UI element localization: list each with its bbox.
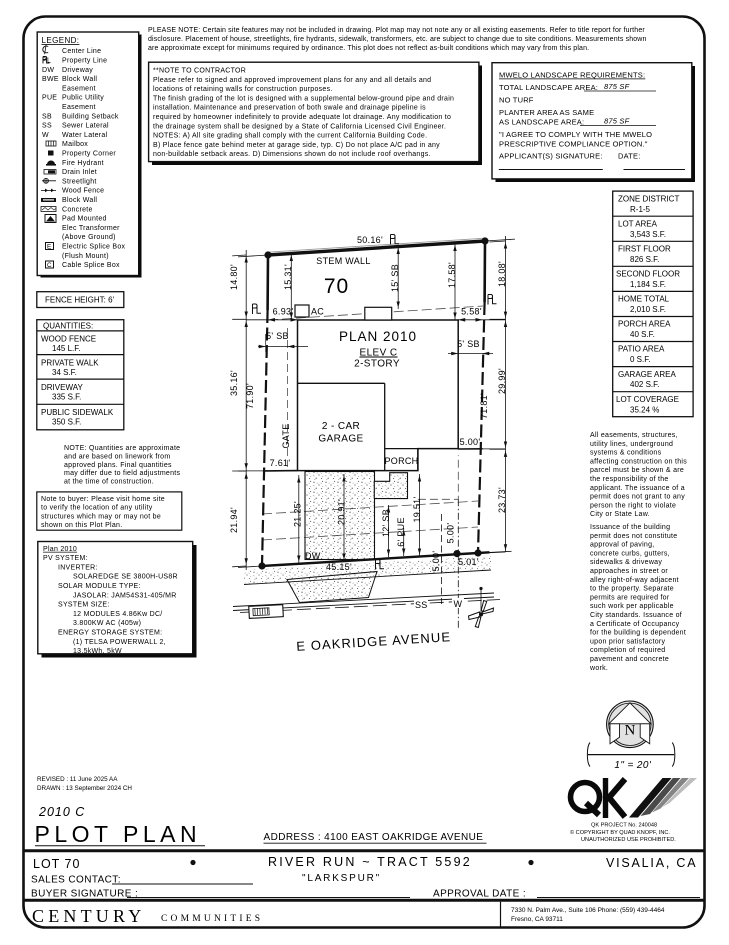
- svg-text:INVERTER:: INVERTER:: [58, 564, 98, 571]
- svg-text:PRESCRIPTIVE COMPLIANCE OPTION: PRESCRIPTIVE COMPLIANCE OPTION.": [499, 140, 648, 149]
- svg-text:CENTURY: CENTURY: [32, 906, 145, 926]
- svg-text:SOLAREDGE SE 3800H-US8R: SOLAREDGE SE 3800H-US8R: [73, 574, 178, 581]
- svg-text:installation. Maintenance and: installation. Maintenance and preservati…: [153, 105, 426, 112]
- svg-text:45.15': 45.15': [326, 562, 352, 572]
- svg-text:N: N: [624, 723, 635, 739]
- svg-text:NO TURF: NO TURF: [499, 96, 534, 105]
- svg-text:17.58': 17.58': [447, 262, 457, 288]
- svg-text:utility lines, underground: utility lines, underground: [590, 441, 673, 448]
- svg-text:C: C: [47, 262, 52, 269]
- svg-text:Streetlight: Streetlight: [62, 178, 97, 185]
- svg-text:at the time of construction.: at the time of construction.: [64, 479, 154, 486]
- svg-text:Fresno, CA 93711: Fresno, CA 93711: [511, 916, 563, 923]
- svg-text:71.81': 71.81': [479, 393, 489, 419]
- svg-text:PRIVATE WALK: PRIVATE WALK: [41, 359, 99, 368]
- svg-text:JASOLAR: JAM54S31-405/MR: JASOLAR: JAM54S31-405/MR: [73, 592, 177, 599]
- svg-text:the drainage system shall be d: the drainage system shall be designed by…: [153, 123, 446, 130]
- svg-text:Drain Inlet: Drain Inlet: [62, 169, 97, 176]
- svg-text:Note to buyer: Please visit ho: Note to buyer: Please visit home site: [41, 496, 165, 503]
- svg-text:© COPYRIGHT BY QUAD KNOPF, I: © COPYRIGHT BY QUAD KNOPF, INC.: [570, 829, 670, 836]
- svg-text:work.: work.: [589, 665, 608, 672]
- svg-text:"I AGREE TO COMPLY WITH THE MW: "I AGREE TO COMPLY WITH THE MWELO: [499, 130, 652, 139]
- svg-text:and are based on linework from: and are based on linework from: [64, 453, 170, 460]
- svg-text:Cable Splice Box: Cable Splice Box: [62, 262, 120, 269]
- svg-text:Concrete: Concrete: [62, 206, 93, 213]
- svg-text:R-1-5: R-1-5: [630, 205, 651, 214]
- svg-text:Issuance of the building: Issuance of the building: [590, 524, 670, 531]
- svg-text:2,010 S.F.: 2,010 S.F.: [630, 305, 666, 314]
- svg-text:shown on this Plot Plan.: shown on this Plot Plan.: [41, 522, 122, 529]
- svg-text:WOOD FENCE: WOOD FENCE: [41, 335, 96, 344]
- svg-text:21.25': 21.25': [293, 501, 303, 527]
- svg-text:LOT COVERAGE: LOT COVERAGE: [616, 395, 679, 404]
- svg-text:Elec Transformer: Elec Transformer: [62, 225, 120, 232]
- svg-text:person the right to violate: person the right to violate: [590, 502, 676, 509]
- svg-text:NOTES: A) All site grading sh: NOTES: A) All site grading shall comply …: [153, 133, 427, 140]
- svg-text:may differ due to field adjust: may differ due to field adjustments: [64, 470, 181, 477]
- svg-text:pavement and concrete: pavement and concrete: [590, 656, 669, 663]
- svg-text:1" = 20': 1" = 20': [614, 760, 651, 771]
- svg-text:Sewer Lateral: Sewer Lateral: [62, 123, 109, 130]
- svg-text:Mailbox: Mailbox: [62, 141, 88, 148]
- svg-text:E: E: [47, 244, 51, 251]
- svg-text:PLEASE NOTE: Certain site fea: PLEASE NOTE: Certain site features may n…: [148, 27, 645, 34]
- svg-text:0 S.F.: 0 S.F.: [630, 355, 650, 364]
- svg-text:12 MODULES 4.86Kw DC/: 12 MODULES 4.86Kw DC/: [73, 611, 163, 618]
- svg-text:LOT 70: LOT 70: [33, 857, 80, 871]
- svg-text:PV SYSTEM:: PV SYSTEM:: [43, 555, 88, 562]
- svg-text:5.58': 5.58': [461, 307, 482, 317]
- svg-text:7.61': 7.61': [270, 458, 291, 468]
- svg-text:Water Lateral: Water Lateral: [62, 132, 108, 139]
- svg-text:B) Place fence gate behind met: B) Place fence gate behind meter at gara…: [153, 142, 440, 149]
- svg-text:PLAN 2010: PLAN 2010: [339, 329, 417, 344]
- svg-text:STEM WALL: STEM WALL: [316, 256, 370, 266]
- svg-text:Easement: Easement: [62, 85, 96, 92]
- svg-text:350 S.F.: 350 S.F.: [52, 418, 81, 427]
- svg-text:structures which may or may no: structures which may or may not be: [41, 513, 161, 520]
- svg-text:required by homeowner indefini: required by homeowner indefinitely to pr…: [153, 114, 451, 121]
- svg-text:Public Utility: Public Utility: [62, 95, 104, 102]
- svg-text:Center Line: Center Line: [62, 48, 101, 55]
- svg-text:PLANTER AREA AS SAME: PLANTER AREA AS SAME: [499, 108, 594, 117]
- svg-text:145 L.F.: 145 L.F.: [52, 344, 80, 353]
- svg-text:ZONE DISTRICT: ZONE DISTRICT: [618, 195, 679, 204]
- svg-text:W: W: [42, 132, 49, 139]
- svg-text:PLOT PLAN: PLOT PLAN: [35, 821, 202, 847]
- svg-text:locations of retaining walls f: locations of retaining walls for constru…: [153, 86, 333, 93]
- svg-text:50.16': 50.16': [357, 235, 383, 245]
- svg-text:HOME TOTAL: HOME TOTAL: [618, 295, 670, 304]
- svg-text:Pad Mounted: Pad Mounted: [62, 216, 107, 223]
- svg-text:5' SB: 5' SB: [266, 331, 289, 341]
- svg-text:(Flush Mount): (Flush Mount): [62, 253, 109, 260]
- svg-text:concrete curbs, gutters,: concrete curbs, gutters,: [590, 550, 670, 557]
- svg-text:6.93': 6.93': [273, 307, 294, 317]
- svg-text:PORCH AREA: PORCH AREA: [618, 320, 671, 329]
- svg-text:DRIVEWAY: DRIVEWAY: [41, 383, 83, 392]
- svg-text:NOTE: Quantities are approxim: NOTE: Quantities are approximate: [64, 445, 180, 452]
- svg-text:alley right-of-way adjacent: alley right-of-way adjacent: [590, 577, 679, 584]
- svg-text:are approximate except for min: are approximate except for minimums requ…: [148, 45, 589, 52]
- svg-text:5.00': 5.00': [431, 551, 441, 572]
- svg-text:SALES CONTACT:: SALES CONTACT:: [31, 875, 121, 886]
- svg-text:DATE:: DATE:: [618, 152, 641, 161]
- svg-text:29.99': 29.99': [497, 368, 507, 394]
- svg-text:Building Setback: Building Setback: [62, 113, 119, 120]
- svg-text:MWELO LANDSCAPE REQUIREMENTS:: MWELO LANDSCAPE REQUIREMENTS:: [499, 71, 645, 80]
- svg-text:GARAGE: GARAGE: [318, 434, 363, 445]
- svg-text:20.91': 20.91': [337, 499, 347, 525]
- svg-text:SYSTEM SIZE:: SYSTEM SIZE:: [58, 602, 110, 609]
- svg-text:Easement: Easement: [62, 104, 96, 111]
- svg-text:Please refer to signed and app: Please refer to signed and approved impr…: [153, 77, 431, 84]
- svg-text:disclosure. Placement of hous: disclosure. Placement of house, streetli…: [148, 36, 647, 43]
- svg-text:PATIO AREA: PATIO AREA: [618, 345, 665, 354]
- svg-text:3.800KW AC (405w): 3.800KW AC (405w): [73, 620, 141, 627]
- svg-text:23.73': 23.73': [497, 487, 507, 513]
- svg-text:SOLAR MODULE TYPE:: SOLAR MODULE TYPE:: [58, 583, 141, 590]
- svg-text:QUANTITIES:: QUANTITIES:: [43, 321, 93, 330]
- svg-text:335 S.F.: 335 S.F.: [52, 393, 81, 402]
- svg-text:Block Wall: Block Wall: [62, 197, 97, 204]
- svg-text:to the property. Separate: to the property. Separate: [590, 586, 674, 593]
- svg-text:15.31': 15.31': [283, 264, 293, 290]
- svg-text:DW: DW: [42, 67, 54, 74]
- svg-text:BUYER SIGNATURE :: BUYER SIGNATURE :: [31, 889, 138, 900]
- svg-text:VISALIA, CA: VISALIA, CA: [606, 856, 697, 870]
- svg-text:QK PROJECT No. 240048: QK PROJECT No. 240048: [591, 823, 657, 829]
- svg-text:15' SB: 15' SB: [390, 264, 400, 292]
- svg-text:(1) TELSA POWERWALL 2,: (1) TELSA POWERWALL 2,: [73, 639, 166, 646]
- svg-text:non-buildable setback areas.: non-buildable setback areas. D) Dimensio…: [153, 151, 431, 158]
- svg-text:City or State Law.: City or State Law.: [590, 511, 650, 518]
- svg-text:All easements, structures,: All easements, structures,: [590, 432, 678, 439]
- svg-text:parcel must be shown & are: parcel must be shown & are: [590, 467, 684, 474]
- svg-text:UNAUTHORIZED USE PROHIBITED.: UNAUTHORIZED USE PROHIBITED.: [581, 837, 676, 843]
- svg-text:7330 N. Palm Ave., Suite 106: 7330 N. Palm Ave., Suite 106 Phone: (559…: [511, 907, 665, 914]
- svg-text:40 S.F.: 40 S.F.: [630, 330, 655, 339]
- svg-text:W: W: [454, 599, 463, 609]
- svg-text:5.01': 5.01': [458, 557, 479, 567]
- svg-text:2 - CAR: 2 - CAR: [322, 421, 360, 432]
- svg-text:Electric Splice Box: Electric Splice Box: [62, 244, 126, 251]
- svg-text:35.24 %: 35.24 %: [630, 405, 659, 414]
- svg-text:2-STORY: 2-STORY: [354, 359, 400, 370]
- svg-text:BWE: BWE: [42, 76, 59, 83]
- svg-text:70: 70: [324, 275, 349, 298]
- svg-text:APPROVAL DATE :: APPROVAL DATE :: [433, 889, 526, 900]
- svg-text:Plan 2010: Plan 2010: [43, 546, 77, 553]
- svg-text:REVISED : 11 June 2025 AA: REVISED : 11 June 2025 AA: [37, 776, 118, 783]
- svg-text:ADDRESS : 4100 EAST OAKRIDGE: ADDRESS : 4100 EAST OAKRIDGE AVENUE: [264, 832, 484, 843]
- svg-text:35.16': 35.16': [229, 370, 239, 396]
- svg-text:Property Corner: Property Corner: [62, 151, 116, 158]
- svg-text:RIVER RUN ~ TRACT 5592: RIVER RUN ~ TRACT 5592: [268, 855, 472, 869]
- svg-text:affecting construction on this: affecting construction on this: [590, 458, 687, 465]
- svg-text:GARAGE AREA: GARAGE AREA: [618, 370, 676, 379]
- svg-text:"LARKSPUR": "LARKSPUR": [302, 873, 381, 884]
- svg-text:approved plans. Final quantit: approved plans. Final quantities: [64, 462, 172, 469]
- svg-text:(Above Ground): (Above Ground): [62, 234, 116, 241]
- svg-text:3,543 S.F.: 3,543 S.F.: [630, 230, 666, 239]
- svg-text:826 S.F.: 826 S.F.: [630, 255, 659, 264]
- svg-text:14.80': 14.80': [229, 264, 239, 290]
- svg-text:the responsibility of the: the responsibility of the: [590, 476, 669, 483]
- svg-text:1,184 S.F.: 1,184 S.F.: [630, 280, 666, 289]
- svg-text:34 S.F.: 34 S.F.: [52, 368, 77, 377]
- svg-text:DW: DW: [305, 551, 321, 561]
- svg-text:upon prior satisfactory: upon prior satisfactory: [590, 638, 666, 645]
- svg-text:13.5kWh, 5kW: 13.5kWh, 5kW: [73, 648, 122, 655]
- svg-text:such work per applicable: such work per applicable: [590, 603, 674, 610]
- svg-text:SECOND FLOOR: SECOND FLOOR: [616, 270, 680, 279]
- svg-text:ELEV C: ELEV C: [360, 348, 398, 359]
- svg-text:5.00': 5.00': [460, 437, 481, 447]
- svg-text:AC: AC: [311, 307, 324, 317]
- svg-text:a Certificate of Occupancy: a Certificate of Occupancy: [590, 621, 680, 628]
- svg-text:Property Line: Property Line: [62, 58, 107, 65]
- svg-text:permit does not constitute: permit does not constitute: [590, 533, 677, 540]
- svg-text:PUBLIC SIDEWALK: PUBLIC SIDEWALK: [41, 408, 114, 417]
- svg-text:402 S.F.: 402 S.F.: [630, 380, 659, 389]
- svg-text:to verify the location of any: to verify the location of any utility: [41, 505, 153, 512]
- svg-text:approval of paving,: approval of paving,: [590, 542, 654, 549]
- svg-text:COMMUNITIES: COMMUNITIES: [161, 914, 263, 924]
- svg-text:applicant. The issuance of a: applicant. The issuance of a: [590, 485, 685, 492]
- svg-text:12' SB: 12' SB: [381, 509, 391, 537]
- svg-text:19.51': 19.51': [412, 496, 422, 522]
- svg-text:Wood Fence: Wood Fence: [62, 188, 104, 195]
- svg-text:18.08': 18.08': [497, 261, 507, 287]
- svg-text:permit does not grant to any: permit does not grant to any: [590, 494, 685, 501]
- svg-text:SS: SS: [42, 123, 52, 130]
- svg-text:Driveway: Driveway: [62, 67, 93, 74]
- svg-text:SS: SS: [415, 600, 428, 610]
- svg-text:6' PUE: 6' PUE: [396, 517, 406, 547]
- svg-text:systems & conditions: systems & conditions: [590, 450, 662, 457]
- svg-text:Block Wall: Block Wall: [62, 76, 97, 83]
- svg-text:71.90': 71.90': [245, 383, 255, 409]
- svg-text:permits are required for: permits are required for: [590, 594, 670, 601]
- svg-text:PUE: PUE: [42, 95, 57, 102]
- svg-text:875 SF: 875 SF: [604, 82, 630, 91]
- svg-text:2010 C: 2010 C: [38, 805, 85, 819]
- svg-text:21.94': 21.94': [229, 507, 239, 533]
- svg-text:for the building is dependent: for the building is dependent: [590, 630, 686, 637]
- svg-text:LOT AREA: LOT AREA: [618, 220, 658, 229]
- svg-text:completion of required: completion of required: [590, 647, 665, 654]
- svg-text:DRAWN : 13 September 2024 CH: DRAWN : 13 September 2024 CH: [37, 785, 132, 792]
- svg-text:sidewalks & driveway: sidewalks & driveway: [590, 559, 662, 566]
- svg-text:APPLICANT(S) SIGNATURE:: APPLICANT(S) SIGNATURE:: [499, 152, 603, 161]
- svg-text:Fire Hydrant: Fire Hydrant: [62, 160, 104, 167]
- svg-text:5' SB: 5' SB: [457, 339, 480, 349]
- svg-text:AS LANDSCAPE AREA:: AS LANDSCAPE AREA:: [499, 118, 584, 127]
- svg-text:City standards. Issuance of: City standards. Issuance of: [590, 612, 682, 619]
- svg-text:FENCE HEIGHT: 6': FENCE HEIGHT: 6': [45, 296, 115, 305]
- svg-text:TOTAL LANDSCAPE AREA:: TOTAL LANDSCAPE AREA:: [499, 83, 598, 92]
- svg-text:ENERGY STORAGE SYSTEM:: ENERGY STORAGE SYSTEM:: [58, 630, 162, 637]
- svg-text:5.00': 5.00': [446, 523, 456, 544]
- svg-text:875 SF: 875 SF: [604, 117, 630, 126]
- svg-text:GATE: GATE: [281, 423, 291, 448]
- svg-text:PORCH: PORCH: [384, 456, 418, 466]
- svg-text:SB: SB: [42, 113, 52, 120]
- svg-text:approaches in street or: approaches in street or: [590, 568, 668, 575]
- svg-text:The finish grading of the lot: The finish grading of the lot is designe…: [153, 95, 454, 102]
- svg-text:**NOTE TO CONTRACTOR: **NOTE TO CONTRACTOR: [153, 68, 246, 75]
- svg-text:FIRST FLOOR: FIRST FLOOR: [618, 245, 671, 254]
- svg-text:LEGEND:: LEGEND:: [42, 36, 80, 45]
